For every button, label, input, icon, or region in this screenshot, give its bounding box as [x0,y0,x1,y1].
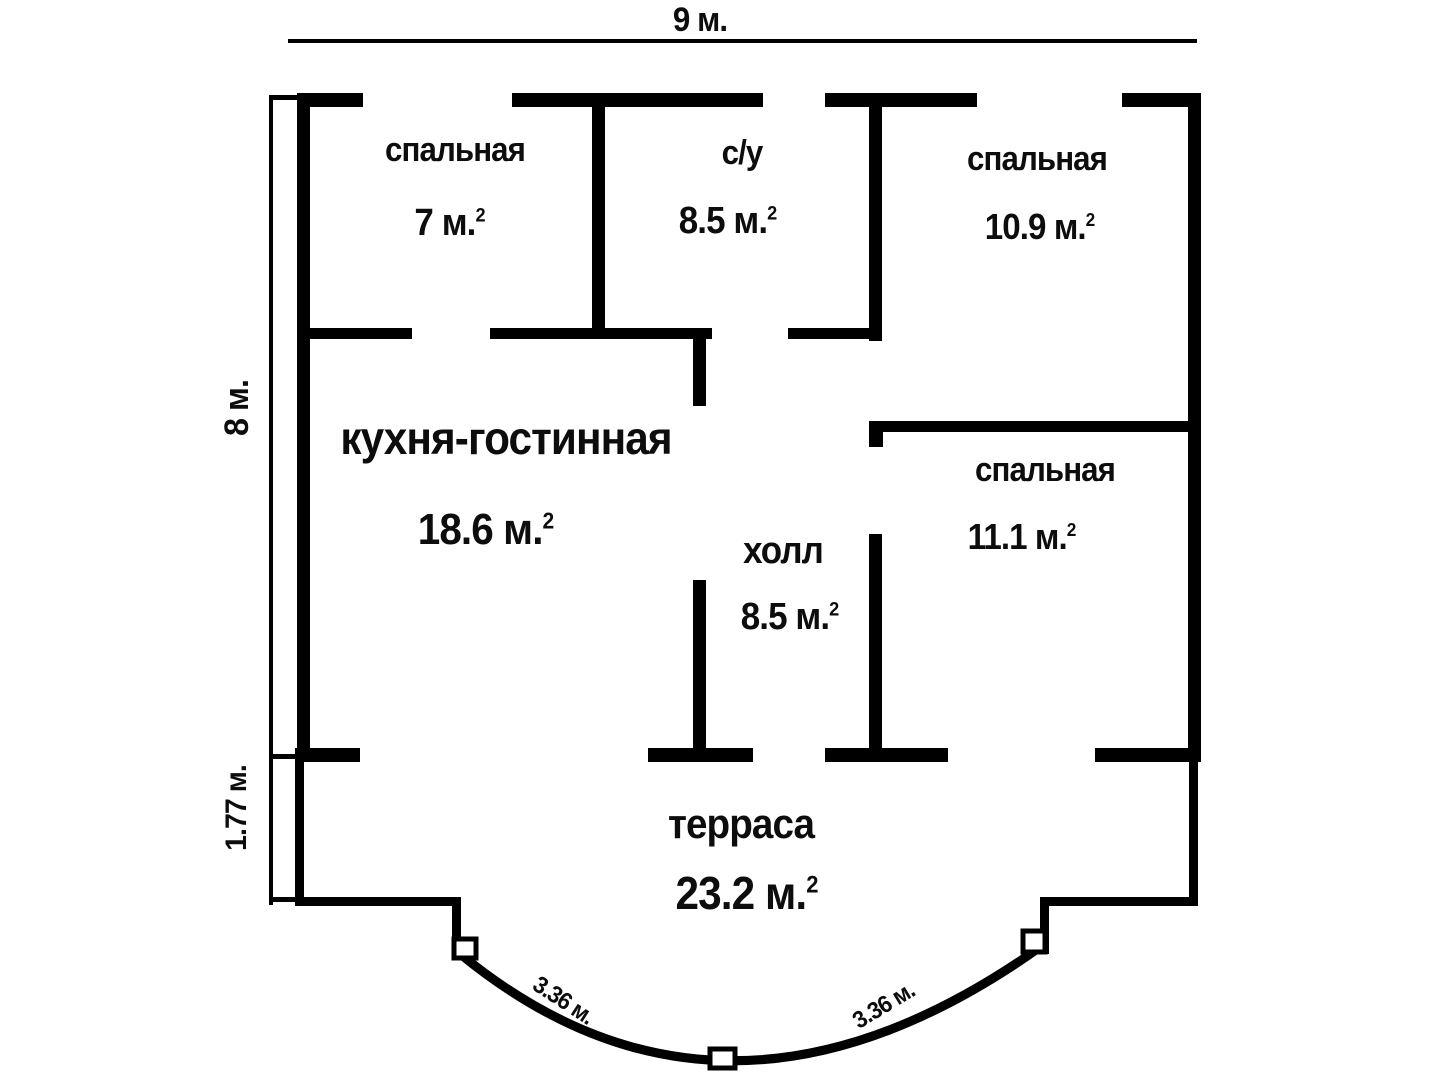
left-dimension-tick-top [273,95,297,100]
terrace-post-center [710,1049,735,1068]
room-hall-area: 8.5 м.2 [741,598,839,636]
room-bedroom2-name: спальная [967,142,1107,176]
wall-left [297,93,310,762]
wall-hall-bedroom3 [869,534,882,750]
wall-bedroom3-top [869,421,1188,432]
left-dimension-tick-middle [273,754,295,759]
wall-bottom-segment-4 [1095,748,1201,762]
room-bedroom1-area: 7 м.2 [414,204,485,242]
room-kitchen-area: 18.6 м.2 [418,508,555,552]
wall-top-segment-2 [512,93,763,107]
top-dimension-line [288,39,1197,43]
wall-top-segment-3 [825,93,977,107]
terrace-post-right [1023,931,1045,952]
room-bedroom3-name: спальная [975,453,1115,487]
room-bedroom1-name: спальная [385,133,525,167]
floor-plan: 9 м. 8 м. 1.77 м. 3.36 м. 3.36 м. спальн… [0,0,1440,1080]
room-bathroom-name: с/у [722,136,763,170]
room-terrace-area: 23.2 м.2 [676,870,819,916]
dimension-width-top: 9 м. [673,3,727,37]
terrace-wall-left [295,762,304,905]
terrace-wall-bottom-left [295,897,460,906]
wall-top-segment-1 [297,93,363,107]
room-terrace-name: терраса [668,803,814,845]
wall-bottom-segment-1 [295,748,360,762]
wall-bottom-segment-3 [825,748,948,762]
left-dimension-line [269,95,273,905]
room-hall-name: холл [743,532,823,570]
room-bedroom2-area: 10.9 м.2 [985,209,1096,245]
wall-bathroom-bedroom2 [869,107,882,341]
terrace-wall-right [1189,762,1198,905]
terrace-post-left [454,939,476,958]
wall-middle-segment-2 [490,328,712,339]
dimension-height-main: 8 м. [220,380,254,436]
room-bathroom-area: 8.5 м.2 [679,202,777,240]
wall-bottom-segment-2 [648,748,753,762]
wall-bedroom1-bathroom [592,107,605,338]
wall-kitchen-hall-upper [693,331,706,406]
wall-kitchen-hall-lower [693,580,706,750]
dimension-height-terrace: 1.77 м. [222,765,252,851]
room-kitchen-name: кухня-гостинная [340,415,671,461]
wall-middle-segment-3 [788,328,875,339]
terrace-wall-bottom-right [1040,897,1198,906]
room-bedroom3-area: 11.1 м.2 [968,519,1077,555]
wall-right [1188,93,1201,762]
wall-bedroom3-top-cap [869,421,883,447]
wall-middle-segment-1 [310,328,412,339]
